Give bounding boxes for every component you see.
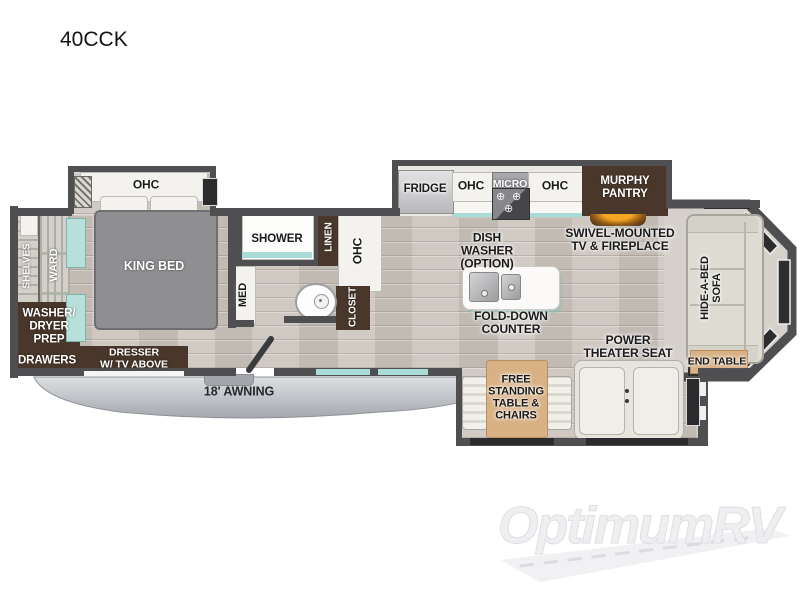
front-wall bbox=[10, 206, 18, 378]
top-wall-front bbox=[10, 208, 72, 216]
kitchen-slide-top-wall bbox=[392, 160, 672, 166]
dish-washer-label: DISH WASHER (OPTION) bbox=[460, 232, 513, 271]
nightstand-top bbox=[66, 218, 86, 268]
closet-label: CLOSET bbox=[347, 287, 358, 327]
med-label: MED bbox=[238, 283, 250, 307]
fireplace-icon bbox=[590, 214, 646, 226]
shower-label: SHOWER bbox=[251, 233, 302, 245]
end-table-label: END TABLE bbox=[688, 356, 746, 367]
kitchen-slide-left-wall bbox=[392, 160, 398, 216]
living-tv-icon bbox=[686, 378, 700, 426]
washer-dryer-prep-label: WASHER/ DRYER PREP bbox=[23, 308, 76, 347]
kitchen-ohc-left-label: OHC bbox=[458, 180, 484, 193]
awning-label: 18' AWNING bbox=[204, 385, 274, 399]
dining-chair-left bbox=[462, 376, 488, 430]
dresser-front-trim bbox=[84, 371, 184, 376]
slide-window-strip-icon bbox=[470, 438, 554, 445]
sofa-armrest-top bbox=[688, 216, 758, 233]
bathroom-wall-stub bbox=[228, 320, 254, 327]
king-bed-label: KING BED bbox=[124, 259, 184, 273]
bedroom-slide-top-wall bbox=[68, 166, 216, 172]
hide-a-bed-sofa bbox=[686, 214, 764, 364]
top-wall-rear bbox=[666, 200, 760, 208]
toilet-drain-icon bbox=[319, 299, 322, 302]
burner-icon: ⊕ bbox=[512, 190, 521, 203]
power-theater-seat-label: POWER THEATER SEAT bbox=[583, 334, 672, 360]
living-slide-left-wall bbox=[456, 368, 462, 446]
wall-window-mark bbox=[700, 382, 706, 396]
dining-chair-right bbox=[546, 376, 572, 430]
vent-icon bbox=[74, 176, 92, 208]
watermark-logo: OptimumRV bbox=[498, 496, 780, 556]
kitchen-island bbox=[462, 266, 560, 310]
recliner-button-icon bbox=[625, 389, 629, 393]
micro-label: MICRO bbox=[493, 179, 528, 191]
bedroom-ohc-label: OHC bbox=[133, 179, 159, 192]
bottom-wall-rear bbox=[700, 368, 750, 376]
murphy-pantry-label: MURPHY PANTRY bbox=[600, 175, 649, 201]
sink-left-icon bbox=[469, 272, 499, 302]
theater-seat-left-cushion bbox=[579, 367, 625, 435]
wall-window-mark bbox=[700, 406, 706, 420]
drawers-label: DRAWERS bbox=[18, 355, 76, 368]
floorplan-page: 40CCK SHELVES WARD WASH bbox=[0, 0, 800, 600]
top-wall-mid bbox=[210, 208, 400, 216]
window-strip-icon bbox=[378, 369, 428, 375]
bathroom-left-wall bbox=[228, 208, 236, 328]
toilet-wall-stub bbox=[284, 316, 336, 323]
theater-seat-right-cushion bbox=[633, 367, 679, 435]
burner-icon: ⊕ bbox=[504, 202, 513, 215]
window-strip-icon bbox=[316, 369, 370, 375]
hide-a-bed-sofa-label: HIDE-A-BED SOFA bbox=[700, 256, 724, 320]
sink-drain-icon bbox=[508, 284, 515, 291]
sink-drain-icon bbox=[481, 290, 488, 297]
free-standing-table-label: FREE STANDING TABLE & CHAIRS bbox=[488, 374, 544, 422]
shelves-label: SHELVES bbox=[21, 243, 32, 288]
rear-window-middle-icon bbox=[778, 260, 790, 324]
bedroom-slide-left-wall bbox=[68, 166, 74, 214]
swivel-tv-label: SWIVEL-MOUNTED TV & FIREPLACE bbox=[565, 227, 674, 253]
kitchen-ohc-right-label: OHC bbox=[542, 180, 568, 193]
dresser-label: DRESSER W/ TV ABOVE bbox=[100, 347, 168, 371]
cooktop-icon: ⊕ ⊕ ⊕ bbox=[492, 188, 530, 220]
sofa-back-seam bbox=[744, 222, 746, 352]
fridge-label: FRIDGE bbox=[404, 183, 447, 195]
page-title: 40CCK bbox=[60, 28, 128, 52]
recliner-button-icon bbox=[625, 399, 629, 403]
bedroom-tv-icon bbox=[202, 178, 218, 206]
shower-threshold bbox=[242, 252, 312, 258]
fold-down-counter-label: FOLD-DOWN COUNTER bbox=[474, 310, 548, 336]
hall-ohc-label: OHC bbox=[352, 238, 365, 264]
ward-label: WARD bbox=[48, 248, 60, 281]
linen-label: LINEN bbox=[323, 222, 334, 252]
slide-window-strip-icon bbox=[586, 438, 688, 445]
sink-right-icon bbox=[501, 274, 521, 300]
theater-seat bbox=[574, 360, 684, 440]
